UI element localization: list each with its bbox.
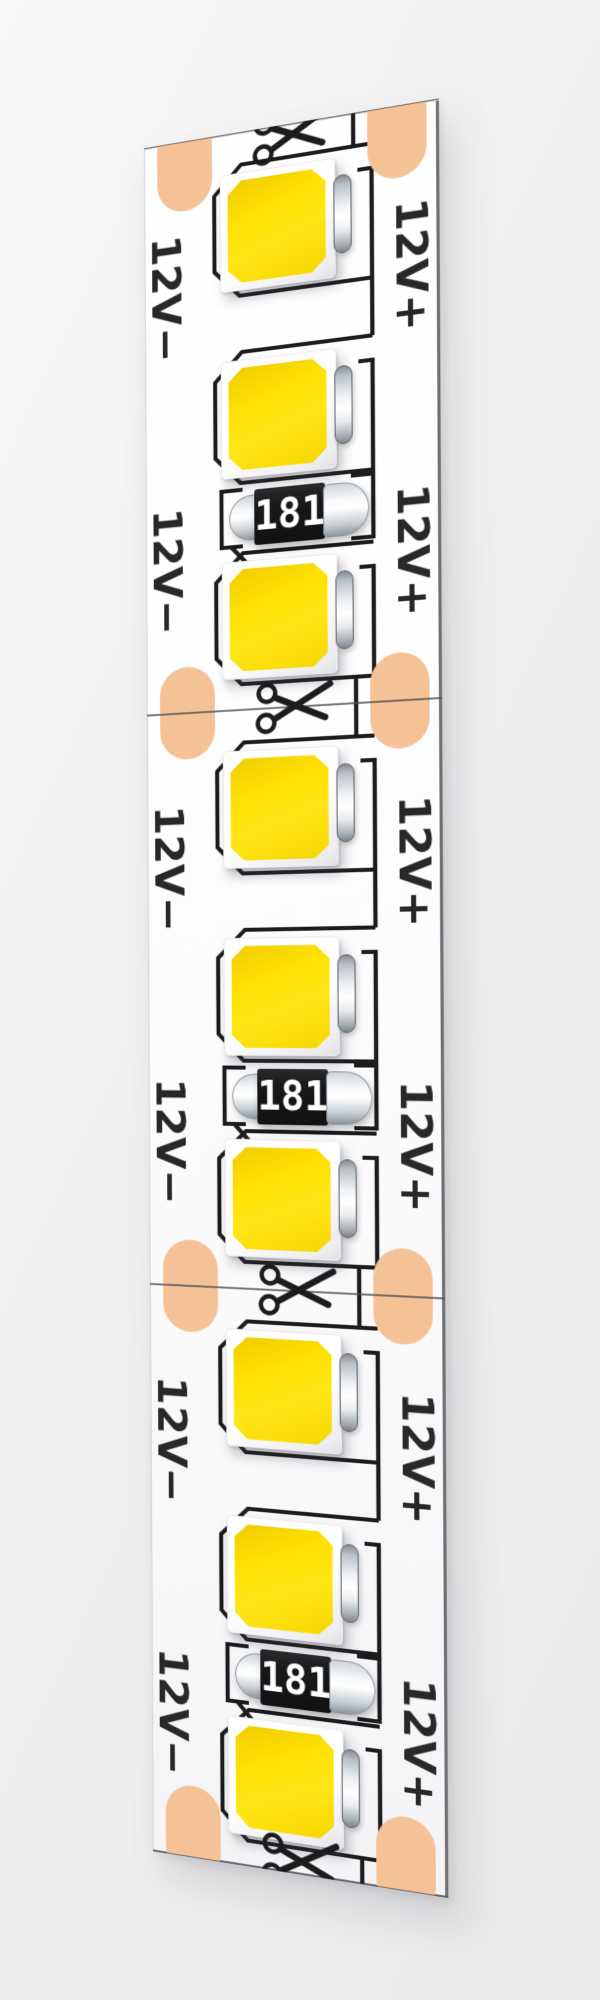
voltage-label-negative: 12V− bbox=[151, 1631, 195, 1793]
strip-segment: 18112V−12V+12V−12V+ bbox=[147, 698, 445, 1299]
voltage-label-negative: 12V− bbox=[147, 790, 191, 948]
cut-point bbox=[147, 637, 443, 775]
resistor-value: 181 bbox=[260, 1656, 331, 1705]
led-electrode bbox=[339, 1352, 357, 1432]
voltage-label-positive: 12V+ bbox=[391, 1065, 439, 1230]
resistor-value: 181 bbox=[257, 1077, 328, 1118]
scissors-icon bbox=[261, 1266, 334, 1317]
resistor-cap-right bbox=[329, 1659, 375, 1718]
scissors-icon bbox=[264, 1834, 337, 1892]
led-phosphor bbox=[231, 945, 329, 1049]
led-electrode bbox=[340, 1543, 358, 1624]
resistor-body: 181 bbox=[260, 1649, 331, 1714]
led-chip bbox=[224, 937, 340, 1057]
resistor-body: 181 bbox=[257, 1069, 328, 1126]
led-electrode bbox=[338, 1159, 356, 1238]
voltage-label-negative: 12V− bbox=[149, 1359, 193, 1519]
led-electrode bbox=[333, 173, 351, 255]
cut-mark bbox=[150, 1225, 446, 1360]
voltage-label-negative: 12V− bbox=[144, 218, 187, 380]
voltage-label-positive: 12V+ bbox=[395, 1659, 443, 1829]
resistor-value: 181 bbox=[254, 490, 325, 537]
led-phosphor bbox=[228, 357, 326, 471]
led-phosphor bbox=[234, 1336, 332, 1445]
voltage-label-positive: 12V+ bbox=[390, 779, 438, 944]
voltage-label-negative: 12V− bbox=[148, 1063, 192, 1220]
led-chip bbox=[221, 348, 337, 480]
led-electrode bbox=[334, 364, 352, 445]
resistor-cap-right bbox=[323, 480, 369, 538]
voltage-label-positive: 12V+ bbox=[388, 466, 436, 634]
resistor: 181 bbox=[229, 471, 373, 553]
led-electrode bbox=[337, 954, 355, 1033]
voltage-label-negative: 12V− bbox=[145, 491, 189, 651]
led-chip bbox=[227, 1514, 343, 1645]
led-strip: 18112V−12V+12V−12V+18112V−12V+12V−12V+18… bbox=[144, 98, 448, 1898]
scissors-icon bbox=[255, 106, 328, 165]
voltage-label-positive: 12V+ bbox=[387, 179, 435, 349]
resistor: 181 bbox=[232, 1063, 376, 1133]
scene: 18112V−12V+12V−12V+18112V−12V+12V−12V+18… bbox=[0, 0, 600, 2000]
voltage-label-positive: 12V+ bbox=[393, 1375, 441, 1542]
led-phosphor bbox=[234, 1523, 332, 1636]
cut-mark bbox=[147, 637, 443, 775]
led-electrode bbox=[335, 570, 353, 650]
led-phosphor bbox=[230, 754, 328, 861]
resistor-cap-right bbox=[326, 1072, 372, 1126]
led-electrode bbox=[342, 1748, 360, 1829]
resistor-body: 181 bbox=[254, 482, 325, 545]
cut-point bbox=[150, 1225, 446, 1360]
scissors-icon bbox=[258, 681, 331, 732]
led-electrode bbox=[336, 763, 354, 843]
